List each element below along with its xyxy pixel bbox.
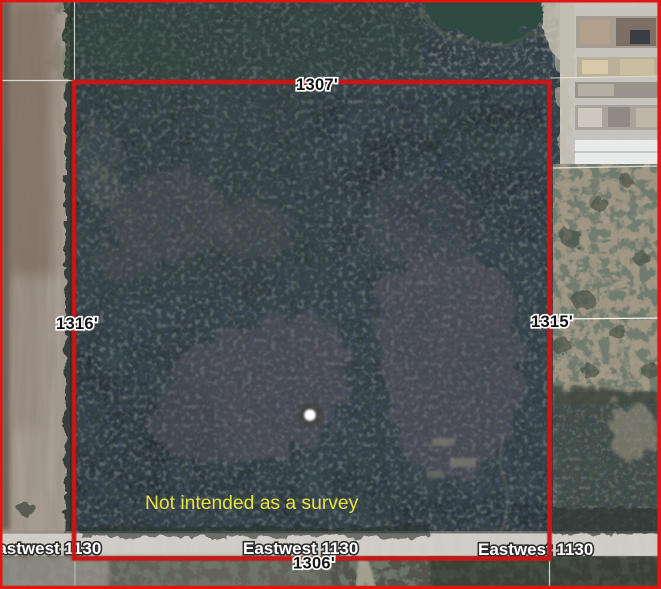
svg-text:Eastwest 1130: Eastwest 1130 — [478, 540, 593, 559]
svg-text:1307': 1307' — [296, 76, 338, 94]
svg-text:Eastwest 1130: Eastwest 1130 — [0, 539, 101, 558]
svg-text:1315': 1315' — [531, 313, 573, 331]
svg-text:1316': 1316' — [56, 315, 98, 333]
svg-text:1306': 1306' — [293, 555, 335, 573]
svg-text:Not intended as a survey: Not intended as a survey — [145, 493, 359, 514]
